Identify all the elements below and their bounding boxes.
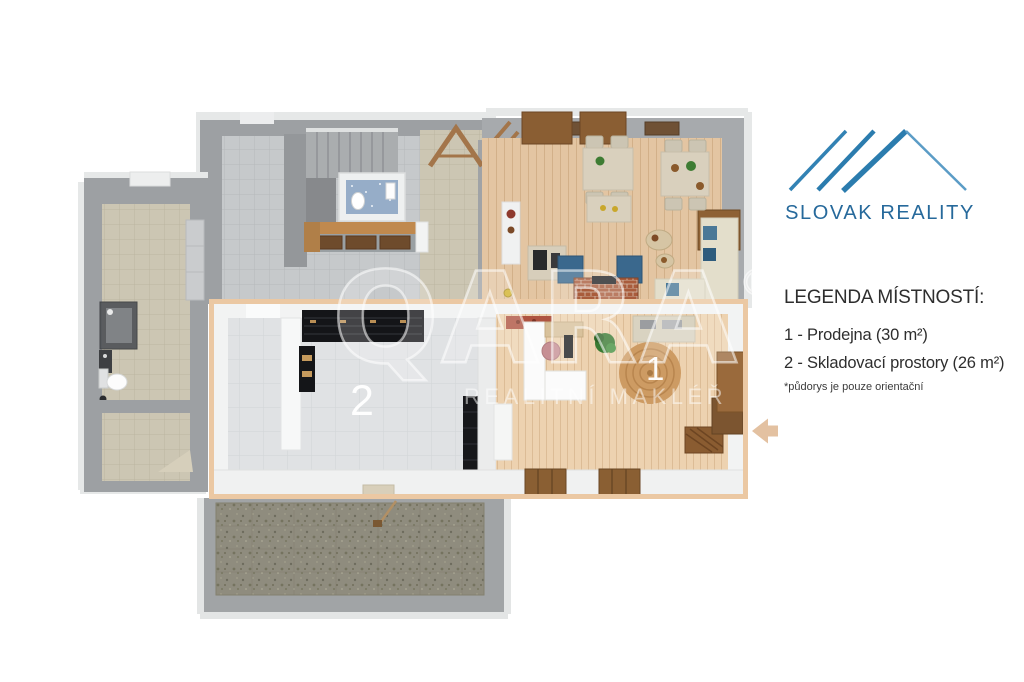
- monitor: [564, 335, 573, 358]
- legend-heading: LEGENDA MÍSTNOSTÍ:: [784, 287, 1004, 309]
- bench: [599, 469, 640, 496]
- storage-rack: [299, 346, 315, 392]
- storage-rack: [302, 310, 424, 342]
- living-dining-room: [482, 112, 740, 304]
- bathroom-wing: [94, 172, 206, 481]
- highlighted-unit: [212, 302, 746, 499]
- shower: [100, 302, 137, 349]
- shop-room: [494, 314, 744, 474]
- wc-room: [339, 173, 405, 221]
- page: QARA® REALITNÍ MAKLÉŘ 1 2 SLOVAK REALITY…: [0, 0, 1024, 682]
- office-chair: [542, 342, 560, 360]
- sideboard: [502, 202, 520, 264]
- arrow-left-icon: [749, 415, 781, 452]
- terrace: [197, 498, 511, 619]
- shop-sideboard: [633, 316, 695, 342]
- white-cabinet: [494, 404, 512, 460]
- room-label-1: 1: [646, 352, 664, 385]
- legend: LEGENDA MÍSTNOSTÍ: 1 - Prodejna (30 m²) …: [784, 287, 1004, 393]
- legend-footnote: *půdorys je pouze orientační: [784, 381, 1004, 393]
- tall-cabinet: [717, 352, 744, 412]
- legend-item-2: 2 - Skladovací prostory (26 m²): [784, 353, 1004, 373]
- roof-icon: [780, 122, 980, 198]
- kitchen: [304, 222, 428, 252]
- brick-half-wall: [574, 276, 638, 303]
- room-label-2: 2: [350, 380, 374, 423]
- bench: [525, 469, 566, 496]
- brand-logo: SLOVAK REALITY: [780, 122, 980, 225]
- legend-item-1: 1 - Prodejna (30 m²): [784, 325, 1004, 345]
- brand-name: SLOVAK REALITY: [780, 202, 980, 225]
